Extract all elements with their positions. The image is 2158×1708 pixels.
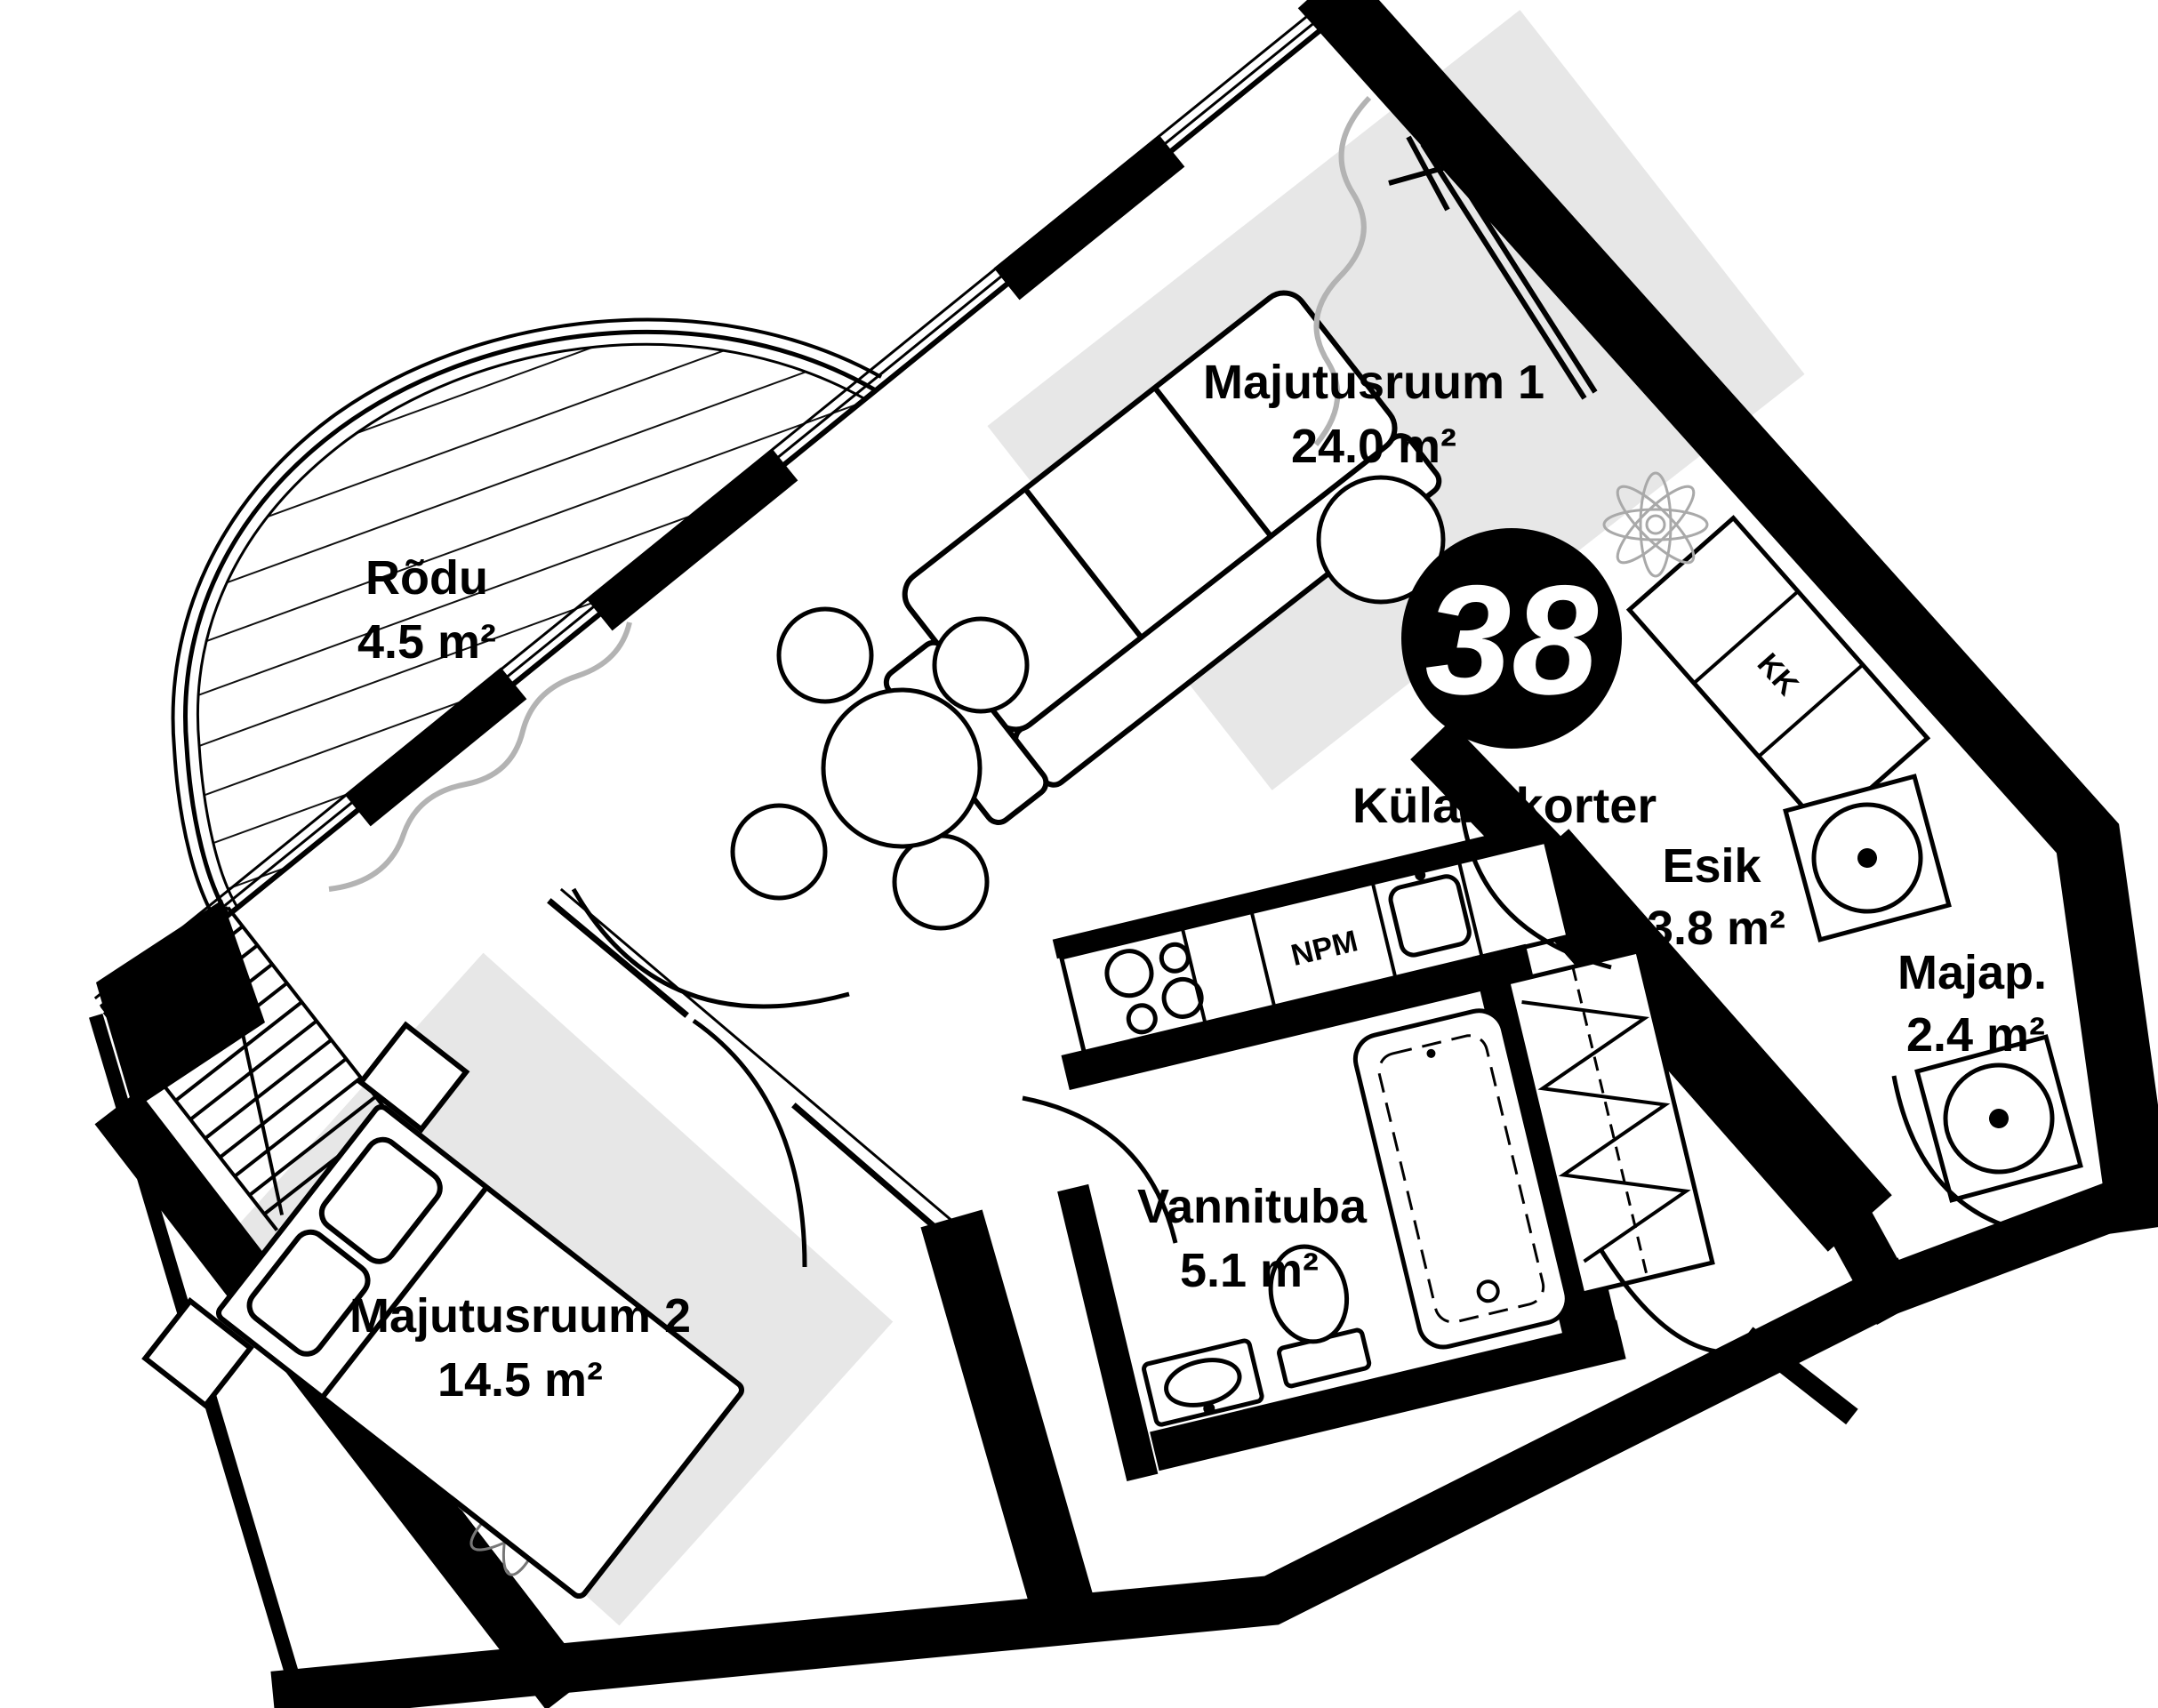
dining-chair — [935, 619, 1027, 711]
room-name: Esik — [1662, 839, 1761, 893]
unit-type-label: Külaliskorter — [1352, 777, 1657, 833]
dining-chair — [894, 836, 987, 928]
room-area: 5.1 m² — [1180, 1244, 1319, 1297]
dining-chair — [779, 609, 871, 702]
room-area: 4.5 m² — [357, 615, 496, 669]
room-area: 3.8 m² — [1647, 902, 1785, 955]
room-name: Rõdu — [365, 551, 488, 605]
room-area: 2.4 m² — [1906, 1008, 2045, 1062]
room-name: Majutusruum 2 — [349, 1289, 691, 1343]
room-area: 14.5 m² — [437, 1353, 603, 1407]
room-name: Majap. — [1897, 946, 2047, 999]
floor-plan: NPM — [0, 0, 2158, 1708]
dining-chair — [733, 806, 825, 898]
dining-table-top — [823, 690, 980, 846]
room-area: 24.0 m² — [1291, 420, 1456, 473]
unit-number: 38 — [1425, 554, 1599, 727]
room-name: Vannituba — [1137, 1180, 1368, 1233]
room-name: Majutusruum 1 — [1203, 356, 1544, 409]
